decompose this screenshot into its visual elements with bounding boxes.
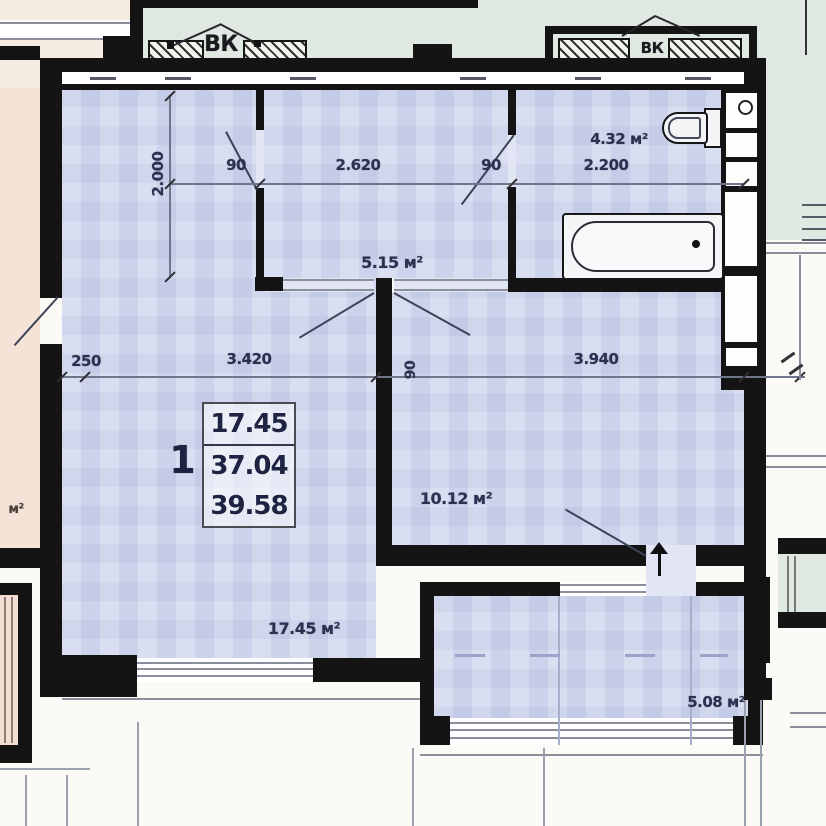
neighbor-line [766, 466, 826, 468]
floor-dash [700, 654, 728, 657]
dimension-label: 90 [469, 156, 513, 174]
wall-kitchen-bottom [696, 545, 744, 566]
neighbor-loggia-floor [778, 554, 826, 612]
toilet-bowl-inner [668, 117, 701, 139]
insulation-dash [90, 77, 116, 80]
duct-box [725, 192, 757, 266]
window-glazing-line [560, 591, 646, 593]
window-glazing-line [434, 722, 734, 724]
window-glazing-line [434, 737, 734, 739]
partition-stub [255, 277, 283, 291]
neighbor-glazing-line [4, 597, 6, 743]
leader-end-marker [254, 40, 261, 47]
threshold-line [394, 279, 508, 281]
grid-line [744, 700, 746, 826]
partition-hall-bath [508, 88, 516, 135]
dimension-label: 2.000 [149, 146, 167, 202]
leader-end-marker [167, 42, 174, 49]
grid-line [543, 748, 545, 826]
wall-bathroom-bottom [508, 278, 744, 292]
wall-stub [103, 36, 130, 58]
room-area-label: 10.12 м² [413, 489, 499, 508]
balcony-corner-post [733, 716, 763, 745]
threshold-line [394, 289, 508, 291]
neighbor-glazing-line [787, 556, 789, 612]
wall-kitchen-bottom [376, 545, 646, 566]
neighbor-balcony-wall [18, 583, 32, 763]
wall-corner [40, 655, 137, 697]
wall-segment [130, 0, 143, 58]
duct-circle [738, 100, 753, 115]
neighbor-line [799, 255, 801, 380]
dimension-label: 3.420 [217, 350, 281, 368]
partition-living-hall [256, 88, 264, 130]
dimension-label: 2.200 [574, 156, 638, 174]
dimension-line [169, 95, 171, 278]
window-glazing-line [137, 675, 313, 677]
stamp-rooms-count: 1 [166, 438, 198, 482]
grid-line [25, 775, 27, 826]
neighbor-line [766, 252, 826, 254]
stair-tread-line [802, 228, 826, 230]
grid-line [412, 748, 414, 826]
door-arrow-head [650, 542, 668, 554]
bathtub-drain [692, 240, 700, 248]
insulation-dash [290, 77, 316, 80]
wall-segment [545, 34, 553, 58]
room-area-label: 4.32 м² [578, 130, 660, 148]
floor-dash [530, 654, 560, 657]
duct-box [726, 348, 757, 366]
grid-line [66, 775, 68, 826]
stamp-total-area: 39.58 [204, 486, 294, 526]
neighbor-line [805, 0, 807, 55]
stair-tread-line [802, 216, 826, 218]
window-glazing-line [434, 729, 734, 731]
neighbor-wall-line [0, 22, 130, 24]
neighbor-line [790, 712, 826, 714]
wall-segment [130, 0, 478, 8]
dimension-label: 2.620 [326, 156, 390, 174]
stair-tread-line [802, 239, 826, 241]
neighbor-loggia-wall [778, 612, 826, 628]
shaft-label: ВК [196, 32, 246, 57]
balcony-mullion-line [690, 596, 692, 745]
window-glazing-line [137, 662, 313, 664]
neighbor-balcony-wall [0, 583, 32, 595]
grid-line [760, 700, 762, 826]
room-area-label: 5.08 м² [676, 693, 756, 711]
insulation-dash [685, 77, 711, 80]
wall-segment [545, 26, 757, 34]
neighbor-loggia-wall [778, 538, 826, 554]
neighbor-area-label: м² [2, 502, 30, 517]
neighbor-line [766, 455, 826, 457]
wall-tick [40, 344, 62, 352]
window-glazing-line [137, 668, 313, 670]
insulation-dash [165, 77, 191, 80]
neighbor-balcony-floor [0, 583, 18, 763]
duct-box [726, 133, 757, 157]
dimension-label: 90 [403, 355, 419, 385]
wall-left [40, 58, 62, 298]
wall-segment [749, 34, 757, 58]
window-glazing-line [560, 584, 646, 586]
partition-living-kitchen [376, 278, 392, 566]
balcony-mullion-line [558, 596, 560, 745]
floor-dash [625, 654, 655, 657]
shaft-label: ВК [631, 39, 673, 57]
neighbor-balcony-wall [0, 745, 32, 763]
stamp-living-area: 17.45 [204, 404, 294, 446]
neighbor-wall-band [0, 46, 40, 60]
entrance-step [413, 44, 452, 60]
dimension-line [62, 376, 805, 378]
duct-box [725, 276, 757, 342]
floor-plan: ВК ВК 2.000 90 2.620 90 4.32 м² 2.200 5.… [0, 0, 826, 826]
wall-left [40, 348, 62, 660]
balcony-outer-line [420, 754, 763, 756]
stamp-apartment-area: 37.04 [204, 446, 294, 486]
neighbor-line [766, 242, 826, 244]
neighbor-wall-band [0, 548, 40, 568]
grid-line [137, 722, 139, 826]
partial-glyph-stroke [781, 352, 796, 364]
neighbor-glazing-line [794, 556, 796, 612]
dimension-label: 250 [64, 352, 108, 370]
neighbor-glazing-line [11, 597, 13, 743]
insulation-dash [575, 77, 601, 80]
partition-living-hall [256, 188, 264, 278]
wall-balcony-top [420, 582, 560, 596]
wall-balcony-top [696, 582, 763, 596]
wall-segment [313, 658, 420, 682]
neighbor-line [790, 726, 826, 728]
insulation-dash [460, 77, 486, 80]
dimension-label: 90 [214, 156, 258, 174]
neighbor-wall [756, 577, 770, 663]
balcony-corner-post [420, 716, 450, 745]
partition-hall-bath [508, 187, 516, 278]
floor-dash [455, 654, 485, 657]
window-sill-line [62, 698, 420, 700]
grid-line [0, 768, 90, 770]
apartment-stamp: 17.45 37.04 39.58 [202, 402, 296, 528]
dimension-label: 3.940 [564, 350, 628, 368]
room-area-label: 17.45 м² [260, 619, 348, 638]
stair-tread-line [802, 204, 826, 206]
room-area-label: 5.15 м² [352, 253, 432, 272]
